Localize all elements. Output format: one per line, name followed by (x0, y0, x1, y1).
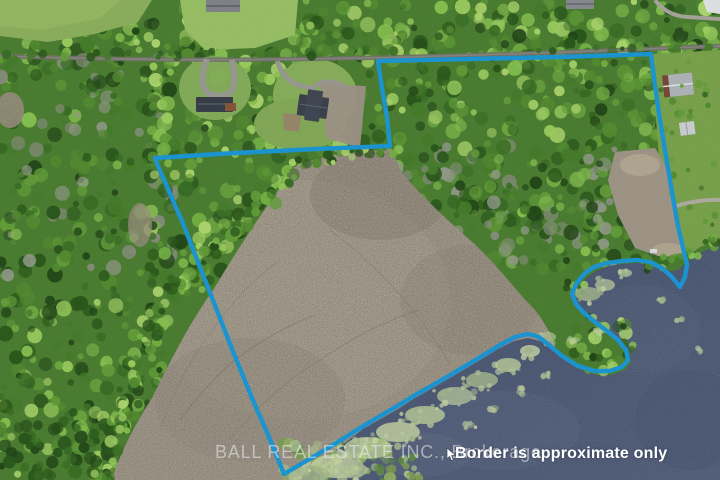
photo-grain-overlay (0, 0, 720, 480)
aerial-photo-canvas (0, 0, 720, 480)
aerial-photo: BALL REAL ESTATE INC., Brokerage Border … (0, 0, 720, 480)
